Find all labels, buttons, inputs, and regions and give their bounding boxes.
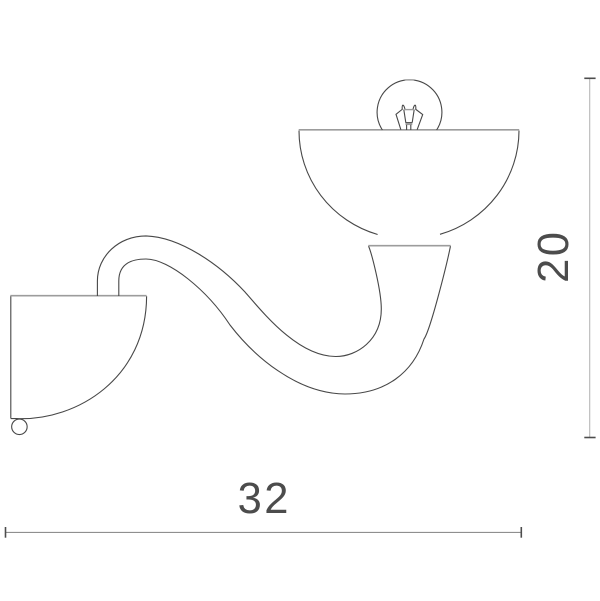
svg-text:32: 32 xyxy=(238,475,291,523)
svg-text:20: 20 xyxy=(530,230,578,283)
